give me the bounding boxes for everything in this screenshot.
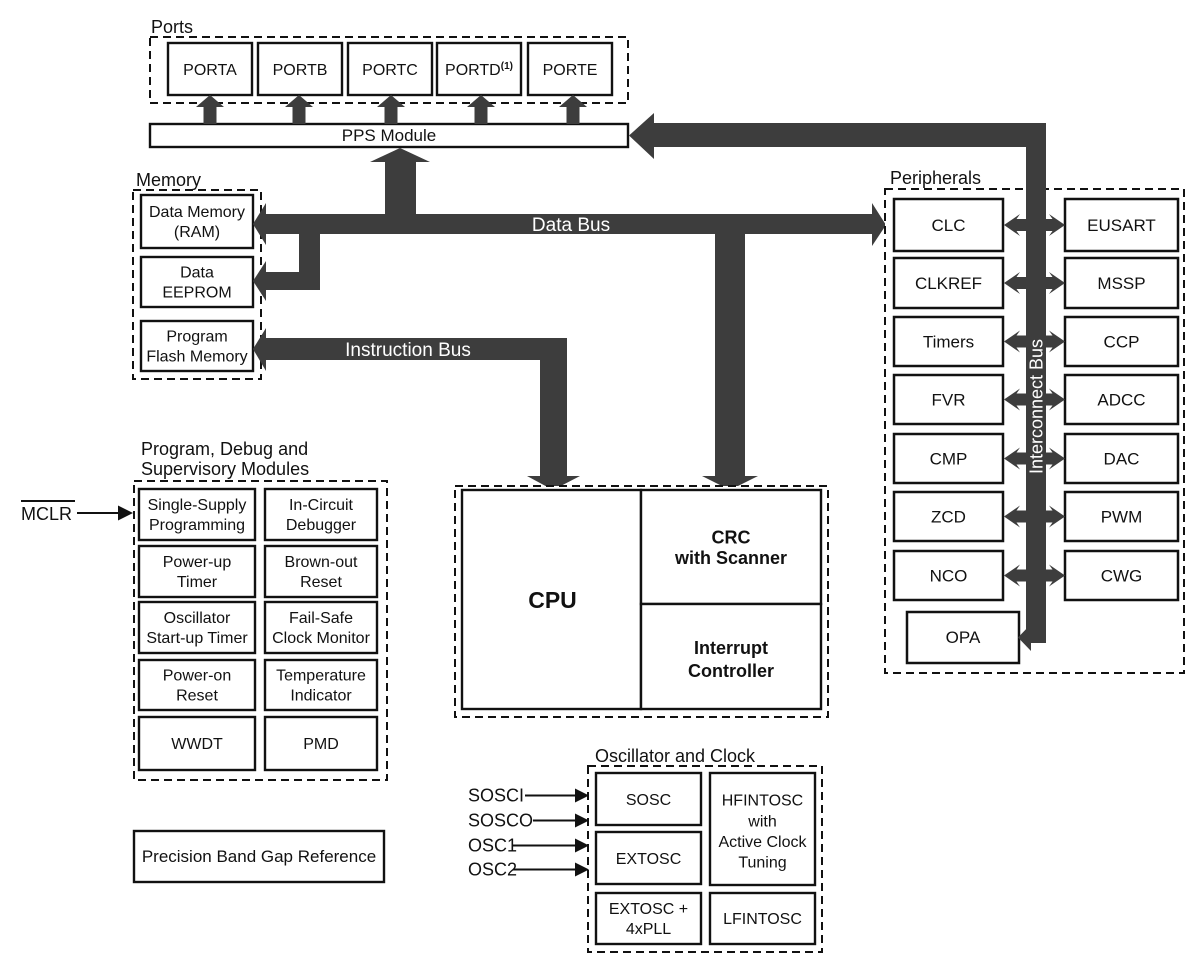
svg-text:Power-up: Power-up [163,554,232,571]
svg-text:CLC: CLC [931,216,965,235]
svg-text:Precision Band Gap Reference: Precision Band Gap Reference [142,847,376,866]
svg-text:Oscillator: Oscillator [164,610,231,627]
svg-text:Temperature: Temperature [276,668,366,685]
svg-text:Peripherals: Peripherals [890,168,981,188]
svg-text:Flash Memory: Flash Memory [146,349,247,366]
svg-text:SOSC: SOSC [626,792,671,809]
svg-text:CPU: CPU [528,587,577,613]
svg-text:PWM: PWM [1101,508,1143,527]
svg-text:Program: Program [166,329,227,346]
svg-text:Instruction Bus: Instruction Bus [345,340,471,361]
svg-text:Debugger: Debugger [286,517,357,534]
svg-text:EXTOSC: EXTOSC [616,851,682,868]
svg-text:ADCC: ADCC [1097,391,1145,410]
svg-text:Single-Supply: Single-Supply [148,497,247,514]
svg-text:PMD: PMD [303,736,339,753]
svg-text:4xPLL: 4xPLL [626,921,671,938]
svg-text:Interconnect Bus: Interconnect Bus [1027,339,1047,474]
svg-text:FVR: FVR [932,391,966,410]
svg-text:CWG: CWG [1101,567,1143,586]
svg-text:EEPROM: EEPROM [162,285,231,302]
svg-text:ZCD: ZCD [931,508,966,527]
svg-text:PPS Module: PPS Module [342,126,437,145]
svg-text:EXTOSC +: EXTOSC + [609,901,688,918]
svg-text:PORTB: PORTB [273,62,328,79]
svg-text:Clock Monitor: Clock Monitor [272,630,370,647]
svg-text:PORTA: PORTA [183,62,237,79]
svg-text:Start-up Timer: Start-up Timer [146,630,248,647]
svg-text:Controller: Controller [688,661,774,681]
svg-text:Reset: Reset [176,688,218,705]
svg-text:WWDT: WWDT [171,736,223,753]
svg-text:CCP: CCP [1104,333,1140,352]
svg-text:Tuning: Tuning [738,855,786,872]
svg-text:SOSCI: SOSCI [468,786,524,806]
svg-text:OSC1: OSC1 [468,836,517,856]
svg-text:CRC: CRC [712,527,751,547]
svg-text:CLKREF: CLKREF [915,274,982,293]
svg-text:CMP: CMP [930,450,968,469]
svg-text:PORTC: PORTC [362,62,418,79]
svg-text:Reset: Reset [300,574,342,591]
svg-text:NCO: NCO [930,567,968,586]
svg-text:EUSART: EUSART [1087,216,1156,235]
svg-text:(RAM): (RAM) [174,224,220,241]
svg-text:PORTE: PORTE [543,62,598,79]
svg-text:Data: Data [180,265,214,282]
svg-text:Program, Debug and: Program, Debug and [141,439,308,459]
svg-text:Interrupt: Interrupt [694,638,768,658]
svg-text:DAC: DAC [1104,450,1140,469]
svg-text:Indicator: Indicator [290,688,352,705]
svg-text:Active Clock: Active Clock [718,834,807,851]
svg-text:Power-on: Power-on [163,668,231,685]
svg-text:Timers: Timers [923,333,974,352]
svg-text:Ports: Ports [151,17,193,37]
svg-text:MCLR: MCLR [21,504,72,524]
svg-text:HFINTOSC: HFINTOSC [722,793,803,810]
svg-text:LFINTOSC: LFINTOSC [723,911,802,928]
svg-text:Brown-out: Brown-out [285,554,358,571]
svg-text:MSSP: MSSP [1097,274,1145,293]
svg-text:Programming: Programming [149,517,245,534]
svg-text:Oscillator and Clock: Oscillator and Clock [595,746,756,766]
svg-text:Data Bus: Data Bus [532,215,610,236]
svg-text:In-Circuit: In-Circuit [289,497,354,514]
svg-text:Timer: Timer [177,574,218,591]
svg-text:Supervisory Modules: Supervisory Modules [141,459,309,479]
svg-text:OSC2: OSC2 [468,860,517,880]
svg-text:with: with [747,813,776,830]
svg-text:Fail-Safe: Fail-Safe [289,610,353,627]
svg-text:Memory: Memory [136,170,201,190]
svg-text:Data Memory: Data Memory [149,204,245,221]
svg-text:SOSCO: SOSCO [468,811,533,831]
svg-text:OPA: OPA [946,628,981,647]
svg-text:with Scanner: with Scanner [674,548,787,568]
